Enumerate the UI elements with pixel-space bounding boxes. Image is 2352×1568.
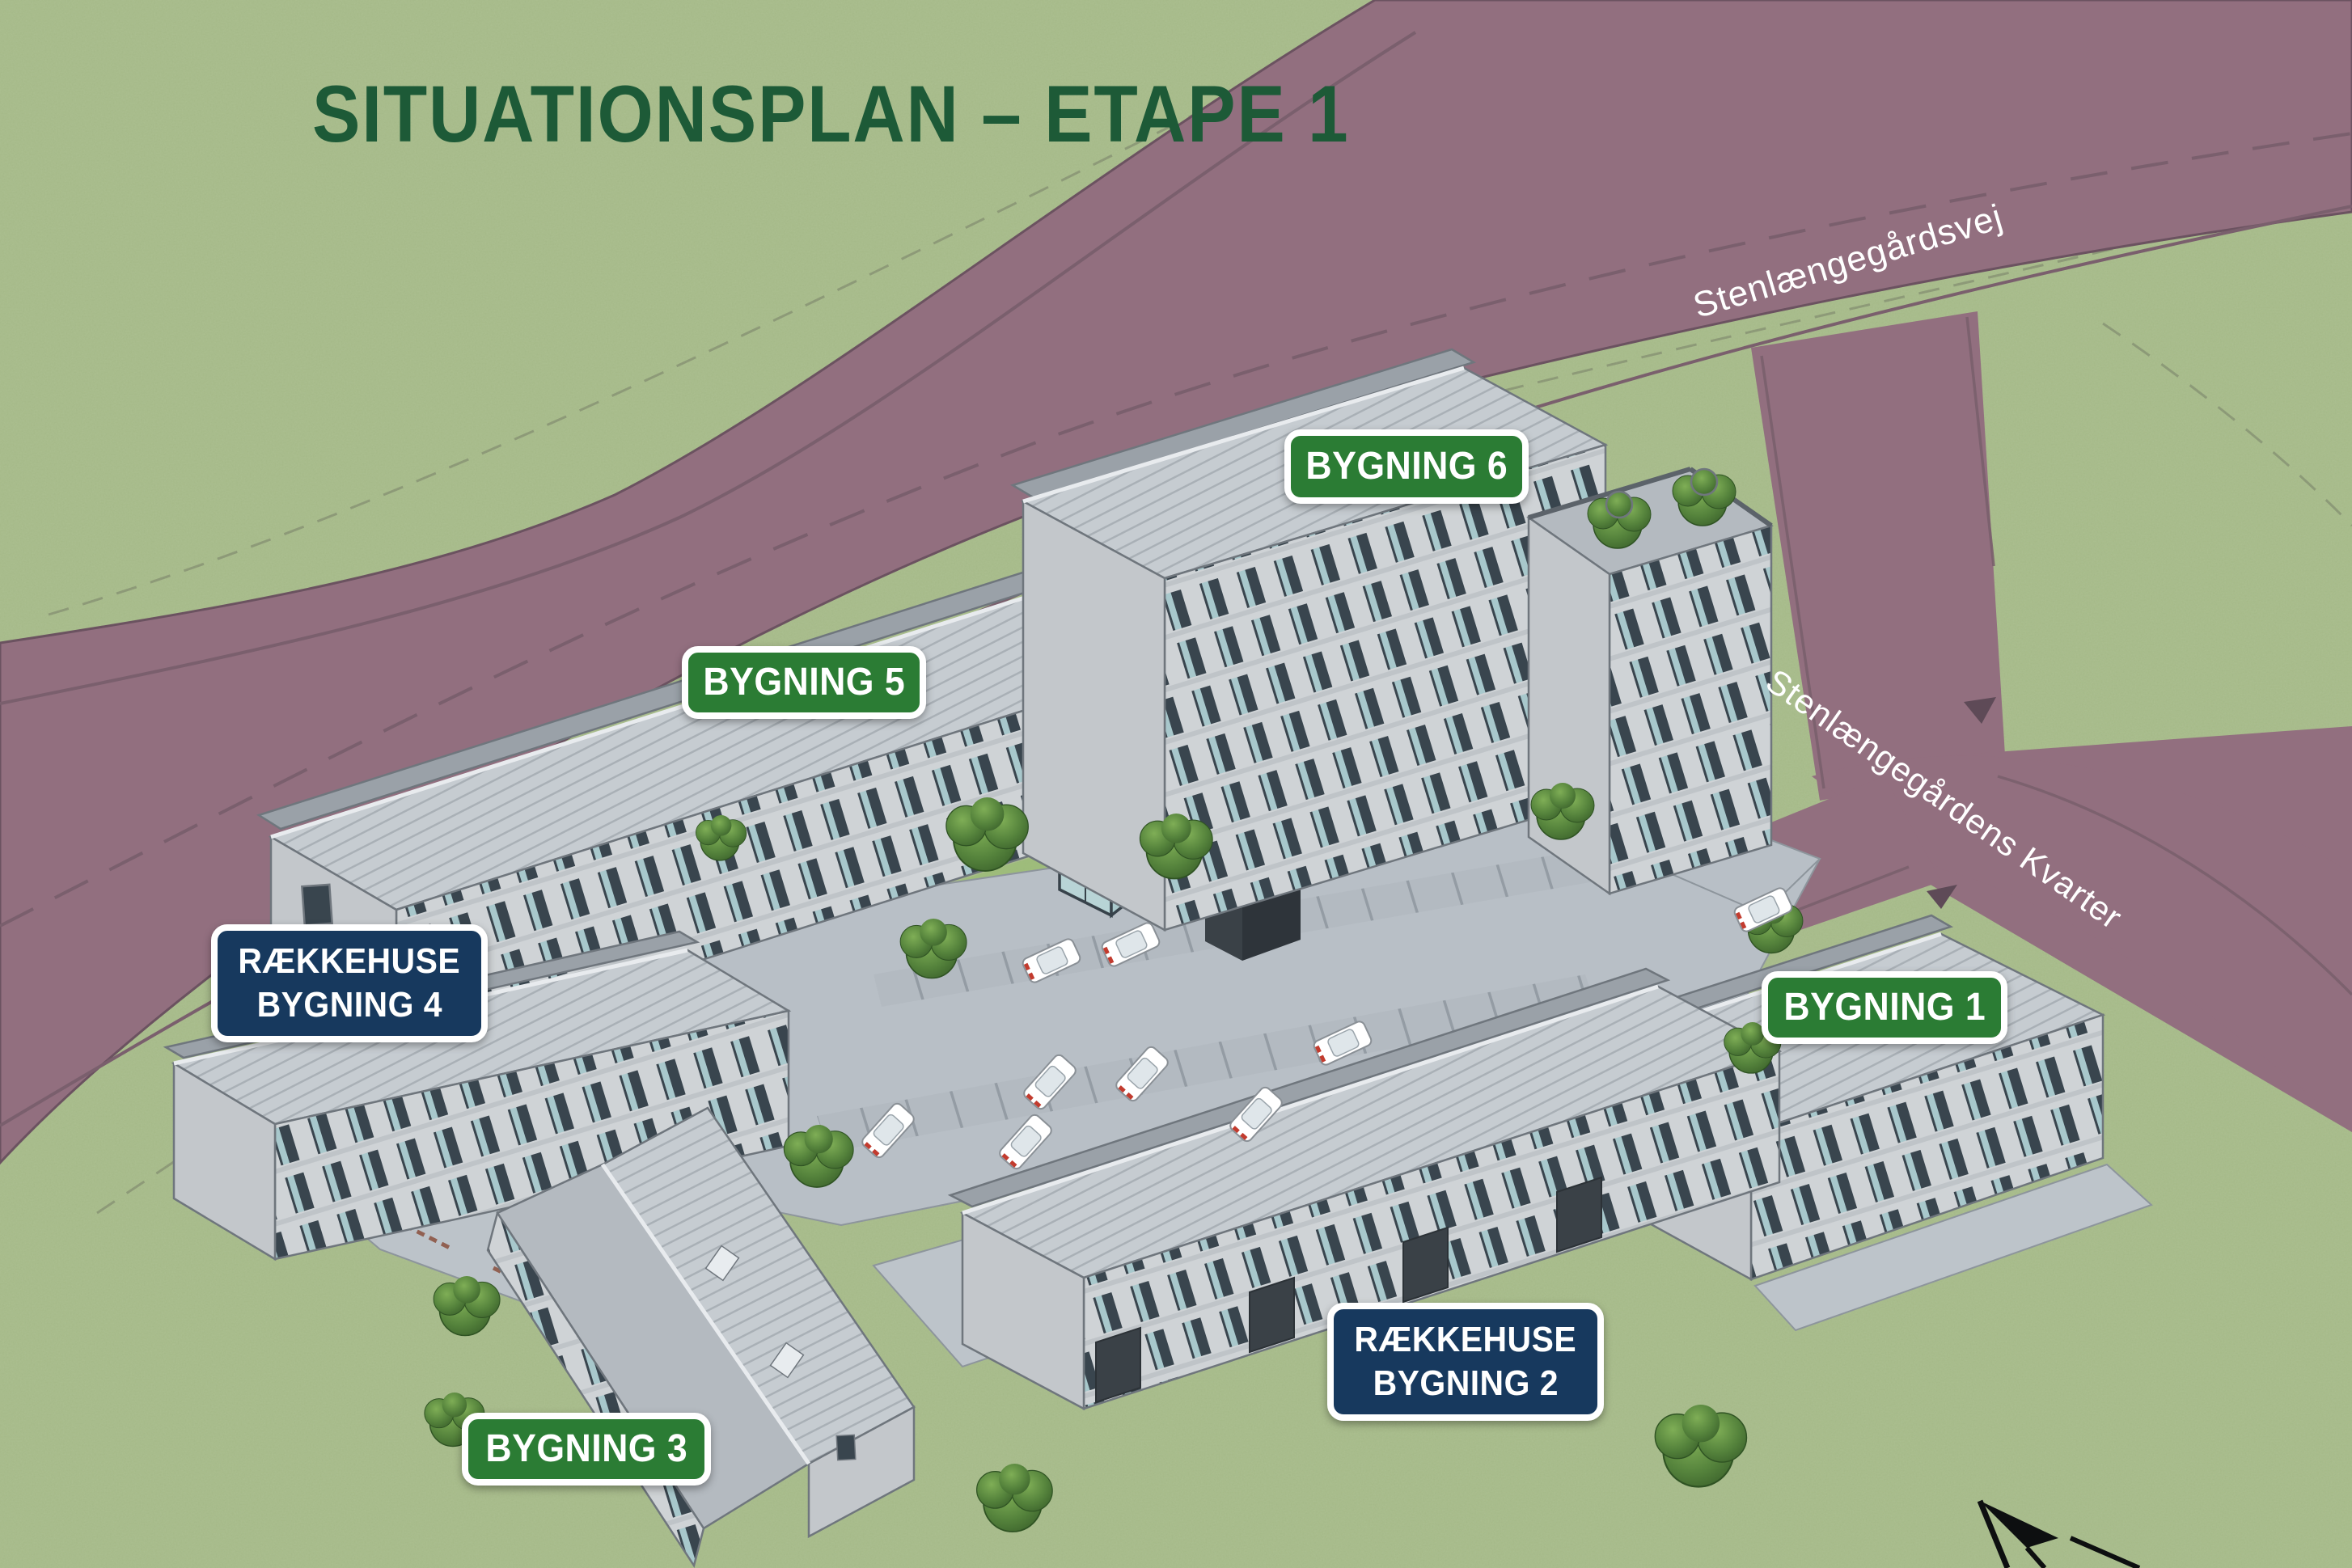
building-label-raekkehuse-bygning-2: RÆKKEHUSE BYGNING 2 (1327, 1303, 1604, 1421)
building-label-bygning-3: BYGNING 3 (462, 1413, 711, 1486)
badge-text: BYGNING 2 (1373, 1362, 1558, 1405)
building-label-bygning-6: BYGNING 6 (1284, 429, 1529, 504)
badge-text: RÆKKEHUSE (239, 940, 461, 983)
badge-text: RÆKKEHUSE (1355, 1318, 1577, 1362)
badge-text: BYGNING 3 (485, 1426, 687, 1473)
building-label-raekkehuse-bygning-4: RÆKKEHUSE BYGNING 4 (211, 924, 488, 1042)
building-label-bygning-5: BYGNING 5 (682, 646, 926, 719)
site-plan: SITUATIONSPLAN – ETAPE 1 Stenlængegårdsv… (0, 0, 2352, 1568)
badge-text: BYGNING 6 (1305, 443, 1508, 491)
badge-text: BYGNING 4 (256, 983, 442, 1027)
badge-text: BYGNING 1 (1783, 984, 1986, 1032)
building-label-bygning-1: BYGNING 1 (1762, 971, 2007, 1044)
badge-text: BYGNING 5 (703, 659, 905, 707)
page-title: SITUATIONSPLAN – ETAPE 1 (312, 68, 1350, 160)
